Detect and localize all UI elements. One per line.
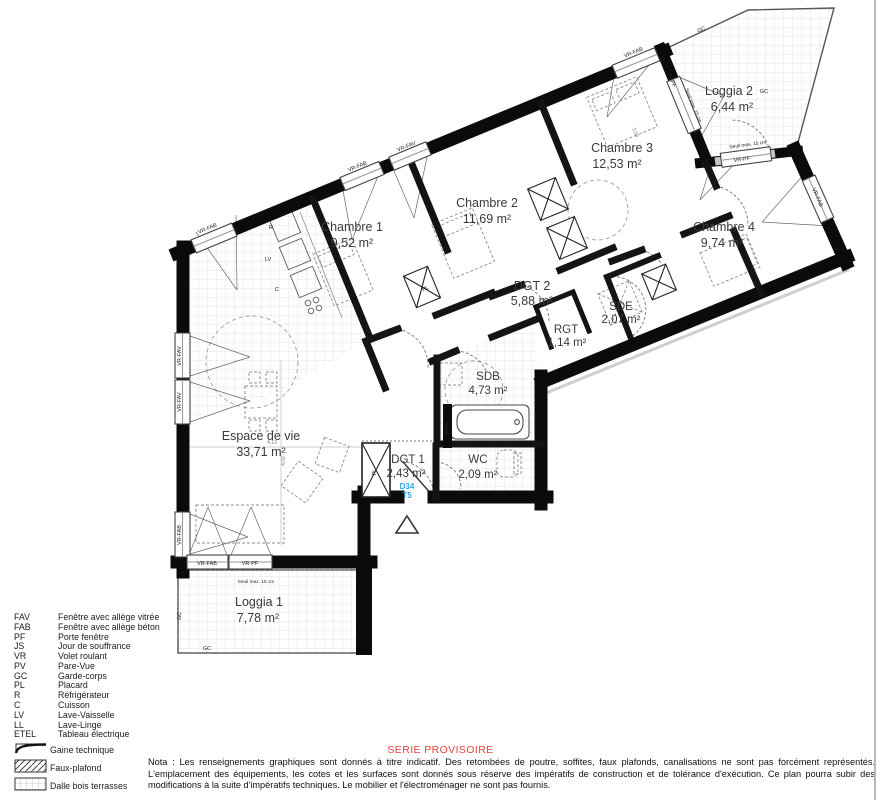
legend-label: Placard [58,680,88,690]
room-label-sdb: SDB [476,371,500,383]
legend-code: FAV [14,612,58,622]
unit-type: T5 [402,491,412,500]
legend-label: Garde-corps [58,671,107,681]
legend-label: Lave-Vaisselle [58,710,115,720]
room-label-loggia1: Loggia 1 [235,595,283,609]
legend-row: PFPorte fenêtre [14,632,214,642]
window-label: VR-FAB [177,525,183,545]
legend-label: Réfrigérateur [58,690,109,700]
room-label-chambre1: Chambre 1 [321,220,383,234]
room-area-espace: 33,71 m² [236,445,285,459]
room-area-loggia1: 7,78 m² [237,611,279,625]
window-label: VR-PF [242,561,259,567]
window-label: VR-FAV [177,392,183,412]
fridge-label: R [269,225,273,231]
room-area-sdb: 4,73 m² [469,385,508,397]
nota-text: Nota : Les renseignements graphiques son… [148,757,875,792]
legend-row: FABFenêtre avec allège béton [14,622,214,632]
legend-row: LLLave-Linge [14,720,214,730]
dalle-bois-icon [14,777,50,796]
legend-label: Cuisson [58,700,90,710]
room-label-dgt2: DGT 2 [514,279,551,293]
entrance-triangle-icon [396,516,418,533]
legend-code: PF [14,632,58,642]
room-label-rgt: RGT [554,324,578,336]
room-area-chambre1: 9,52 m² [331,236,373,250]
legend-row: LVLave-Vaisselle [14,710,214,720]
room-area-wc: 2,09 m² [459,469,498,481]
legend-code: LL [14,720,58,730]
room-label-loggia2: Loggia 2 [705,84,753,98]
legend-row: JSJour de souffrance [14,641,214,651]
faux-plafond-icon [14,759,50,778]
room-label-sde: SDE [609,301,633,313]
room-area-dgt2: 5,88 m² [511,294,553,308]
room-label-chambre2: Chambre 2 [456,196,518,210]
legend-code: PL [14,680,58,690]
legend-code: ETEL [14,729,58,739]
gc-label: GC [760,89,768,95]
serie-provisoire-banner: SERIE PROVISOIRE [0,744,881,756]
window-label: VR-FAV [177,346,183,366]
bathtub [451,405,529,439]
legend-label: Dalle bois terrasses [50,781,127,791]
legend-code: C [14,700,58,710]
legend-label: Volet roulant [58,651,107,661]
legend-row: GCGarde-corps [14,671,214,681]
legend-row: PLPlacard [14,681,214,691]
room-area-loggia2: 6,44 m² [711,100,753,114]
legend-code: LV [14,710,58,720]
legend-label: Lave-Linge [58,720,102,730]
dishwasher-label: LV [265,257,272,263]
legend-row: PVPare-Vue [14,661,214,671]
legend-row: FAVFenêtre avec allège vitrée [14,612,214,622]
room-label-chambre3: Chambre 3 [591,141,653,155]
room-area-chambre4: 9,74 m² [701,236,743,250]
page-edge-line [874,0,876,800]
etel-label: ETEL [444,422,450,434]
legend-code: GC [14,671,58,681]
room-label-chambre4: Chambre 4 [693,220,755,234]
legend-label: Fenêtre avec allège vitrée [58,612,159,622]
room-area-chambre3: 12,53 m² [592,157,641,171]
legend-code: FAB [14,622,58,632]
dim-label: 4,13 [267,440,277,446]
legend-row: RRéfrigérateur [14,690,214,700]
window-label: VR-FAB [197,561,217,567]
room-label-wc: WC [468,454,487,466]
legend-code: R [14,690,58,700]
room-area-sde: 2,07 m² [602,314,641,326]
legend-label: Pare-Vue [58,661,95,671]
room-label-espace: Espace de vie [222,429,301,443]
legend-label: Jour de souffrance [58,641,131,651]
legend-code: JS [14,641,58,651]
unit-code: D34 [400,482,415,491]
washer-label: LL [531,318,537,324]
room-area-rgt: 1,14 m² [548,337,587,349]
legend-code: VR [14,651,58,661]
pl-label: PL [372,469,378,476]
dim-label: 4,02 [281,456,287,466]
legend-row: ETELTableau électrique [14,730,214,740]
legend-label: Fenêtre avec allège béton [58,622,160,632]
room-area-chambre2: 11,69 m² [463,212,511,226]
legend-row: VRVolet roulant [14,651,214,661]
legend-label: Faux-plafond [50,763,101,773]
legend-label: Tableau électrique [58,729,129,739]
legend-code: PV [14,661,58,671]
legend-label: Porte fenêtre [58,632,109,642]
legend-row: CCuisson [14,700,214,710]
room-label-dgt1: DGT 1 [391,454,425,466]
room-area-dgt1: 2,43 m² [387,468,426,480]
seuil-label: Seuil max. 15 cm [238,579,275,585]
cooker-label: C [275,287,279,293]
